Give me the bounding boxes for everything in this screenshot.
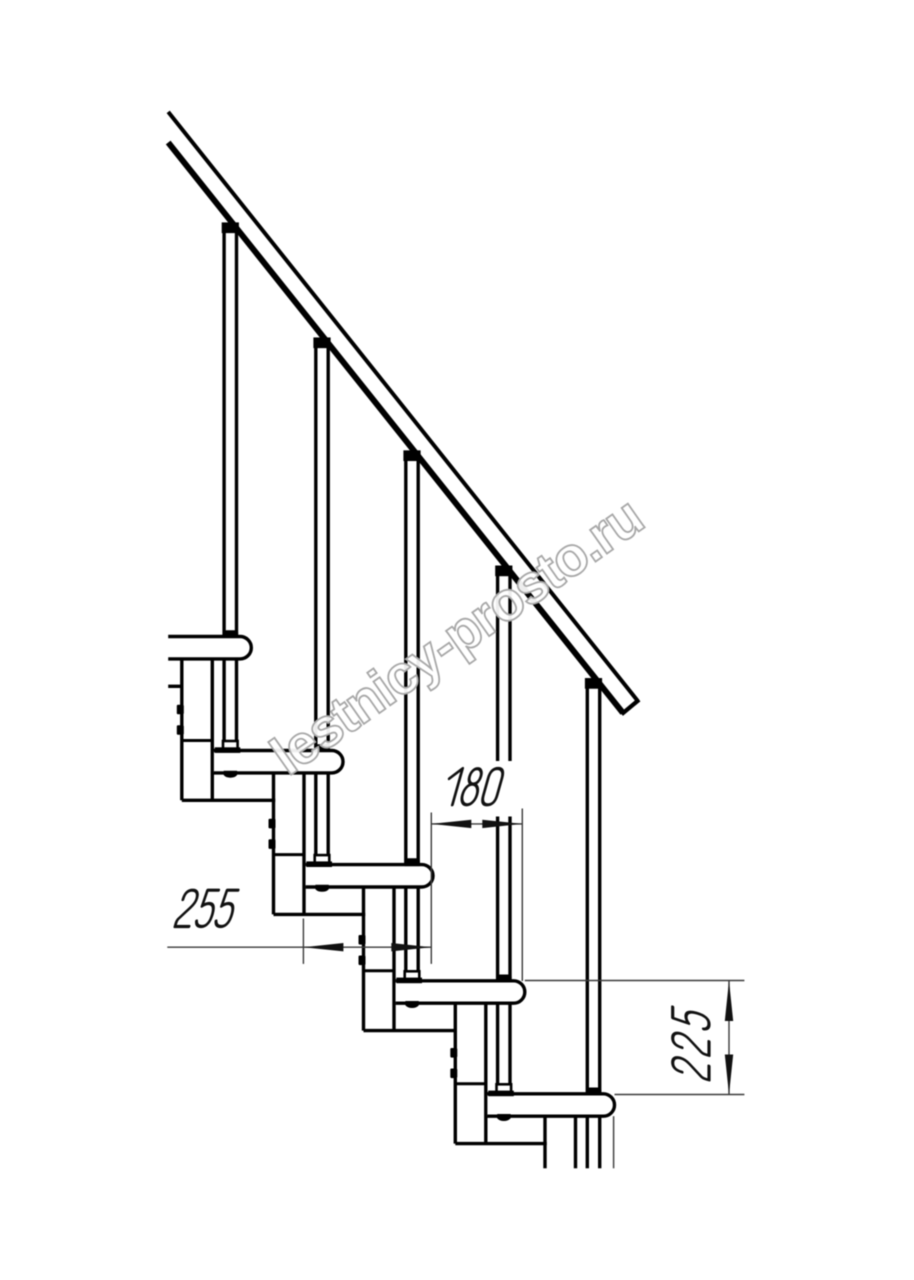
svg-text:lestnicy-prosto.ru: lestnicy-prosto.ru: [259, 485, 653, 787]
